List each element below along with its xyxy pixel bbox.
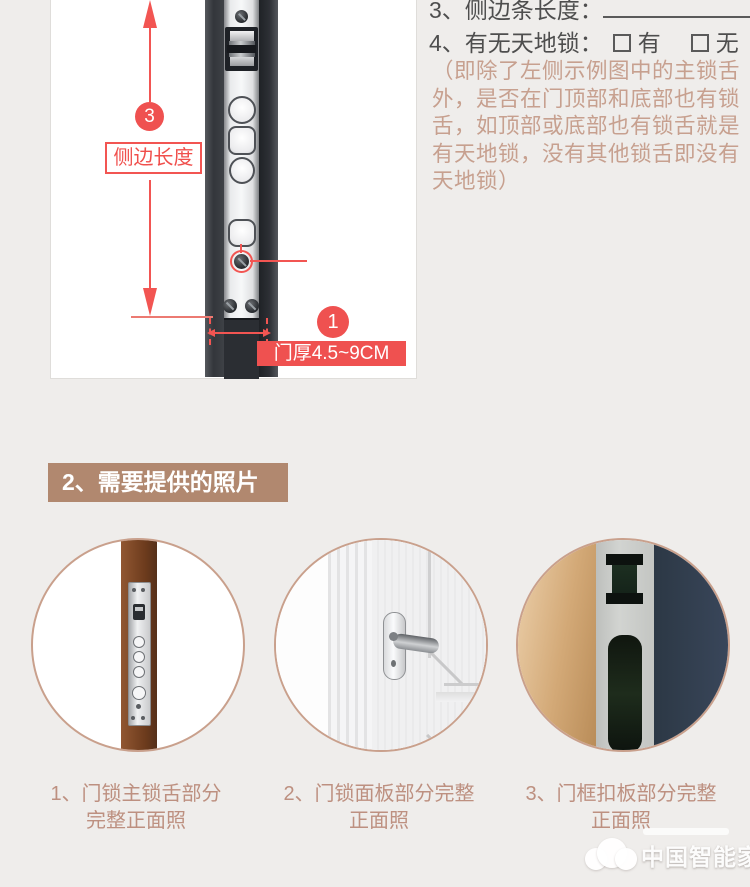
handle-joint — [389, 632, 398, 641]
photo-main-bolt — [31, 538, 245, 752]
strike-hole-bar — [606, 593, 643, 604]
strike-hole-bottom — [608, 635, 642, 752]
thickness-arrow-left-icon — [207, 329, 215, 337]
screw-icon — [245, 299, 259, 313]
heaven-earth-lock-note: （即除了左侧示例图中的主锁舌外，是否在门顶部和底部也有锁舌，如顶部或底部也有锁舌… — [432, 58, 740, 196]
side-strip-length-label: 3、侧边条长度： — [429, 0, 603, 23]
dimension-tick-line — [131, 316, 213, 318]
step-badge-1: 1 — [317, 306, 349, 338]
cloud-logo-icon — [585, 836, 641, 870]
bolt-hole — [133, 651, 145, 663]
panel-molding — [436, 692, 486, 702]
keyhole-icon — [391, 660, 396, 667]
heaven-earth-lock-label: 4、有无天地锁： — [429, 30, 603, 56]
floor-wood — [518, 540, 596, 750]
thickness-arrow-right-icon — [263, 329, 271, 337]
dimension-line-lower — [149, 180, 151, 292]
photo-strike-plate — [516, 538, 730, 752]
latch-bolt-groove — [227, 45, 256, 53]
bolt-hole — [133, 666, 145, 678]
latch-bolt — [133, 604, 145, 620]
section-heading-photos: 2、需要提供的照片 — [48, 463, 288, 502]
screw-icon — [235, 10, 248, 23]
door-frame-edge — [328, 540, 372, 750]
bolt-hole — [228, 96, 256, 124]
bolt-hole — [229, 157, 255, 184]
bolt-hole — [133, 636, 145, 648]
caption-line: 2、门锁面板部分完整 — [274, 781, 484, 808]
side-length-blank-field[interactable] — [603, 0, 750, 18]
form-line-heaven-earth-lock: 4、有无天地锁：有无 — [429, 24, 739, 58]
screw-icon — [136, 704, 141, 709]
strike-hole-center — [612, 565, 637, 593]
door-thickness-label: 门厚4.5~9CM — [257, 341, 406, 366]
checkbox-yes-label: 有 — [638, 30, 661, 56]
screw-icon — [141, 716, 145, 720]
checkbox-no-label: 无 — [716, 30, 739, 56]
dimension-line-upper — [149, 12, 151, 102]
step-badge-3: 3 — [135, 102, 164, 131]
watermark-url-bar — [643, 828, 729, 835]
bolt-hole — [228, 219, 256, 247]
site-watermark: 中国智能家网 — [585, 822, 750, 884]
bolt-hole — [132, 686, 146, 700]
caption-line: 完整正面照 — [31, 808, 241, 835]
latch-bolt-top — [230, 31, 254, 41]
screw-icon — [131, 716, 135, 720]
crosshair-line — [250, 260, 307, 262]
screw-highlight-ring — [230, 250, 253, 273]
screw-icon — [141, 588, 145, 592]
door-edge-right — [259, 0, 278, 377]
panel-molding — [444, 683, 486, 686]
caption-line: 正面照 — [274, 808, 484, 835]
watermark-site-name: 中国智能家网 — [641, 838, 750, 872]
photo-lock-panel — [274, 538, 488, 752]
checkbox-no[interactable] — [691, 34, 709, 52]
product-instruction-page: 3 侧边长度 1 门厚4.5~9CM 3、侧边条长度： 4、有无天地锁：有无 （… — [0, 0, 750, 887]
strike-hole-bar — [606, 554, 643, 565]
caption-line: 1、门锁主锁舌部分 — [31, 781, 241, 808]
strike-hole-top — [606, 554, 643, 604]
door-edge-left — [205, 0, 224, 377]
thickness-dimension-line — [214, 332, 264, 334]
caption-line: 3、门框扣板部分完整 — [516, 781, 726, 808]
screw-icon — [223, 299, 237, 313]
checkbox-yes[interactable] — [613, 34, 631, 52]
dimension-arrow-down-icon — [143, 288, 157, 316]
door-leaf-dark — [654, 540, 728, 750]
photo-caption-2: 2、门锁面板部分完整 正面照 — [274, 781, 484, 835]
form-line-side-strip-length: 3、侧边条长度： — [429, 0, 750, 25]
door-bottom-section — [224, 318, 259, 379]
side-length-label: 侧边长度 — [105, 142, 202, 174]
latch-bolt-bottom — [230, 57, 254, 66]
photo-caption-1: 1、门锁主锁舌部分 完整正面照 — [31, 781, 241, 835]
screw-icon — [132, 588, 136, 592]
bolt-hole — [228, 126, 256, 155]
